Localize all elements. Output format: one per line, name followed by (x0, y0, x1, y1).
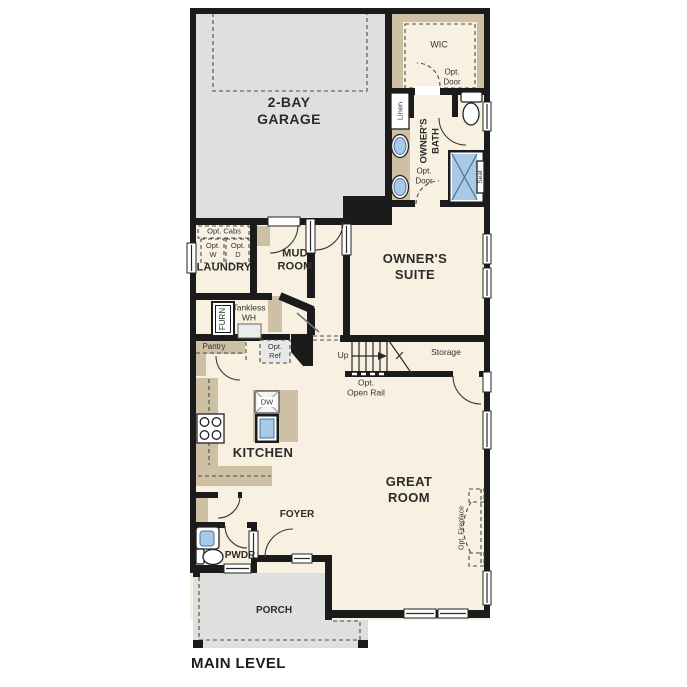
window (438, 609, 468, 618)
stove (197, 414, 224, 443)
opt-cabs-label: Opt. Cabs (207, 226, 241, 235)
window (224, 564, 251, 573)
laundry-label: LAUNDRY (197, 261, 252, 274)
stairs-up-label: Up (338, 350, 349, 360)
tankless-water-heater (238, 324, 261, 338)
front-door-threshold (292, 554, 312, 563)
window (483, 571, 491, 605)
owners-suite-label: OWNER'S SUITE (383, 251, 447, 283)
window (483, 268, 491, 298)
powder-toilet (196, 549, 223, 565)
powder-sink (196, 527, 219, 549)
foyer-label: FOYER (280, 509, 314, 521)
island-sink (255, 414, 279, 443)
mudroom-bench (255, 226, 270, 246)
drop-zone (268, 296, 282, 332)
garage-label: 2-BAY GARAGE (257, 94, 321, 128)
dishwasher-label: DW (261, 397, 274, 406)
window (404, 609, 436, 618)
window (483, 234, 491, 264)
window (483, 411, 491, 449)
door-jamb (342, 224, 351, 255)
furnace-label: FURN (218, 308, 228, 330)
seat-label: Seat (477, 170, 485, 183)
window (483, 102, 491, 131)
floor-plan: 2-BAY GARAGE WIC Opt. Door Linen OWNER'S… (0, 0, 687, 687)
bath-opt-door-label: Opt. Door (415, 166, 432, 186)
wic-label: WIC (430, 40, 448, 51)
mud-room-label: MUD ROOM (277, 248, 312, 275)
linen-label: Linen (395, 102, 404, 120)
opt-fireplace-label: Opt. Fireplace (459, 506, 468, 550)
door-opening (415, 86, 440, 95)
opt-dryer-label: Opt. D (231, 241, 245, 259)
opt-open-rail-label: Opt. Open Rail (347, 378, 385, 399)
tankless-label: Tankless WH (232, 303, 265, 324)
pantry-label: Pantry (202, 342, 225, 352)
owners-bath-label: OWNER'S BATH (418, 118, 441, 163)
storage-label: Storage (431, 347, 461, 357)
door-jamb (268, 217, 300, 226)
porch-label: PORCH (256, 605, 292, 617)
floor-plan-drawing (0, 0, 687, 687)
wic-opt-door-label: Opt. Door (443, 67, 460, 87)
plan-title: MAIN LEVEL (191, 655, 286, 672)
window (187, 243, 196, 273)
kitchen-label: KITCHEN (233, 445, 294, 461)
door-jamb (483, 372, 491, 392)
powder-label: PWDR (225, 550, 256, 562)
opt-washer-label: Opt. W (206, 241, 220, 259)
opt-ref-label: Opt. Ref (268, 342, 282, 360)
great-room-label: GREAT ROOM (386, 474, 433, 506)
